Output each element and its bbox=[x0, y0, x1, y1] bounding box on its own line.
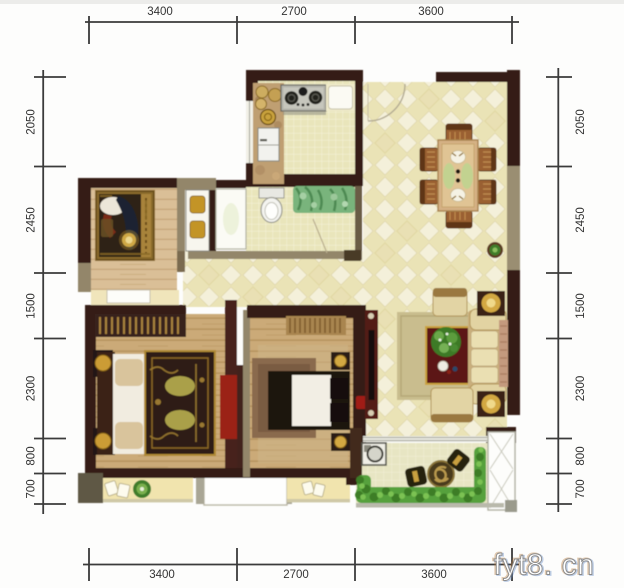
svg-text:800: 800 bbox=[26, 446, 38, 465]
svg-text:fyt8. cn: fyt8. cn bbox=[494, 549, 595, 582]
svg-text:1500: 1500 bbox=[26, 293, 38, 319]
svg-text:800: 800 bbox=[575, 446, 587, 465]
svg-text:3600: 3600 bbox=[418, 6, 444, 18]
svg-text:3400: 3400 bbox=[149, 569, 175, 581]
svg-text:2300: 2300 bbox=[26, 376, 38, 402]
svg-text:700: 700 bbox=[575, 479, 587, 498]
svg-text:2050: 2050 bbox=[26, 109, 38, 135]
svg-text:2700: 2700 bbox=[283, 569, 309, 581]
svg-text:2300: 2300 bbox=[575, 376, 587, 402]
svg-text:1500: 1500 bbox=[575, 293, 587, 319]
svg-text:3400: 3400 bbox=[147, 6, 173, 18]
svg-text:2050: 2050 bbox=[575, 109, 587, 135]
svg-text:700: 700 bbox=[26, 479, 38, 498]
svg-text:2450: 2450 bbox=[575, 207, 587, 233]
svg-text:3600: 3600 bbox=[421, 569, 447, 581]
svg-text:2700: 2700 bbox=[281, 6, 307, 18]
svg-text:2450: 2450 bbox=[26, 207, 38, 233]
